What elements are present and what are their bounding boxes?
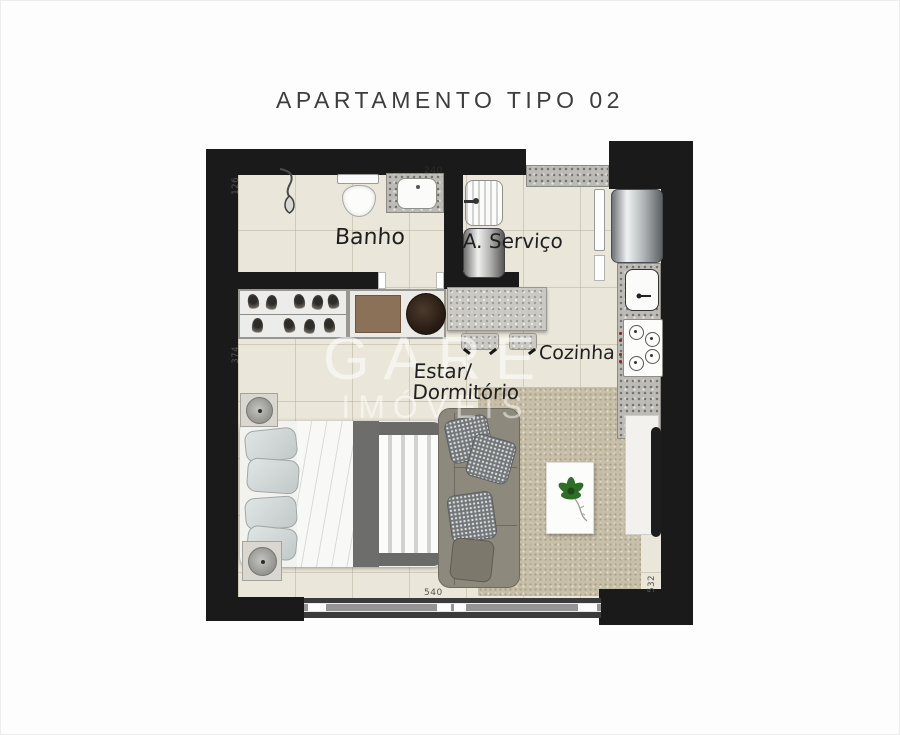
wardrobe-rail <box>240 314 346 315</box>
burner-icon <box>645 349 660 364</box>
lamp-icon <box>248 547 277 576</box>
entry-door-leaf <box>594 189 605 251</box>
dim-estar-width: 540 <box>424 588 443 598</box>
kitchen-sink <box>625 269 659 311</box>
window-sash-3 <box>454 604 466 611</box>
kitchen-faucet-icon <box>635 287 653 305</box>
bed-duvet <box>297 421 357 567</box>
sofa-pillow <box>446 490 498 544</box>
tv-icon <box>651 427 661 537</box>
stove-knob <box>619 339 622 342</box>
sofa-pillow <box>449 537 495 583</box>
nightstand-bottom <box>242 541 282 581</box>
clothes-icon <box>247 293 260 311</box>
window-sash-2 <box>437 604 451 611</box>
entry-sill <box>526 165 609 187</box>
banho-door-jamb-left <box>378 272 386 289</box>
lamp-icon <box>246 397 273 424</box>
clothes-icon <box>310 294 324 313</box>
blanket-edge-bottom <box>379 553 443 566</box>
room-label-cozinha: Cozinha <box>538 342 615 364</box>
clothes-icon <box>327 293 341 312</box>
burner-icon <box>629 325 644 340</box>
plant-icon <box>550 475 594 532</box>
bed-pillow <box>246 457 300 495</box>
window-sash-4 <box>578 604 597 611</box>
wall-right <box>661 149 693 591</box>
cooktop <box>623 319 663 377</box>
fridge <box>611 189 663 263</box>
clothes-icon <box>251 317 264 335</box>
banho-sink-basin <box>397 178 437 209</box>
room-label-banho: Banho <box>334 225 405 250</box>
burner-icon <box>645 332 660 347</box>
banho-faucet-icon <box>416 185 420 189</box>
sofa <box>438 408 520 588</box>
wall-banho-servico <box>444 149 463 289</box>
clothes-icon <box>282 317 296 336</box>
banho-door-jamb-right <box>436 272 444 289</box>
stove-knob <box>619 332 622 335</box>
stove-knob <box>619 353 622 356</box>
room-label-estar-line2: Dormitório <box>412 382 520 403</box>
nightstand-top <box>240 393 278 427</box>
coffee-table <box>546 462 594 534</box>
room-label-servico: A. Serviço <box>462 229 563 253</box>
window-glass-band <box>304 603 601 612</box>
clothes-icon <box>265 294 279 313</box>
wall-bottom-right <box>599 589 693 625</box>
floor-plan-page: APARTAMENTO TIPO 02 <box>0 0 900 735</box>
wall-top-left <box>206 149 526 175</box>
page-title: APARTAMENTO TIPO 02 <box>1 87 899 114</box>
window-frame <box>304 598 601 618</box>
toilet-tank <box>337 174 379 184</box>
dim-banho-counter: 240 <box>424 166 443 176</box>
wall-bottom-left <box>206 597 304 621</box>
dim-banho-height: 126 <box>231 177 241 195</box>
bed-runner <box>353 421 379 567</box>
dim-living-right: 532 <box>647 575 657 593</box>
laundry-tank <box>465 180 503 226</box>
laundry-faucet-knob <box>473 198 479 204</box>
wall-banho-bottom <box>238 272 378 289</box>
clothes-icon <box>293 294 305 312</box>
shower-icon <box>277 167 303 224</box>
room-label-estar: Estar/ Dormitório <box>412 361 521 403</box>
stove-knob <box>619 360 622 363</box>
window-sash-1 <box>308 604 326 611</box>
entry-door-frame <box>594 255 605 281</box>
burner-icon <box>629 356 644 371</box>
bed-striped-blanket <box>379 422 443 566</box>
wall-left <box>206 149 238 621</box>
bed-pillow <box>244 495 298 531</box>
room-label-estar-line1: Estar/ <box>413 361 521 382</box>
dim-estar-height: 374 <box>231 346 241 364</box>
